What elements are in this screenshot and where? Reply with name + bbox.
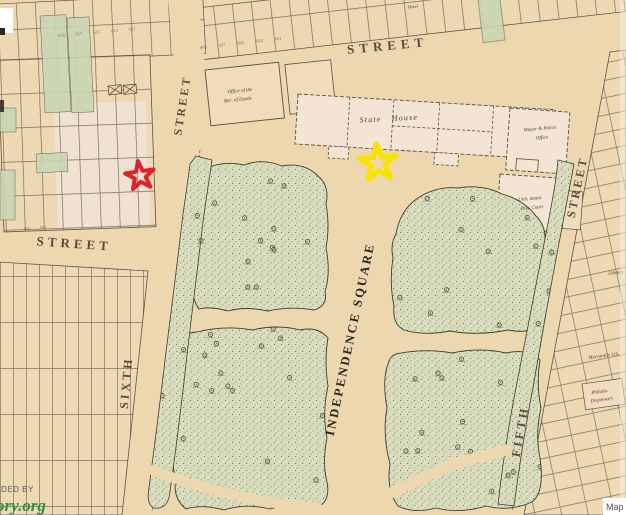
map-viewport: STREET STREET STREET SIXTH STREET FIFTH … bbox=[0, 0, 626, 515]
right-edge-strip bbox=[620, 0, 626, 515]
attribution-site-link[interactable]: ory.org bbox=[0, 496, 46, 515]
historic-map-canvas: STREET STREET STREET SIXTH STREET FIFTH … bbox=[0, 0, 626, 515]
hotel-label: Hotel bbox=[407, 4, 419, 10]
map-credit-text: Map bbox=[606, 502, 624, 512]
map-credit: Map bbox=[603, 498, 626, 515]
provided-by-text: DED BY bbox=[1, 485, 34, 494]
park-lawn-upper-left bbox=[189, 162, 328, 311]
